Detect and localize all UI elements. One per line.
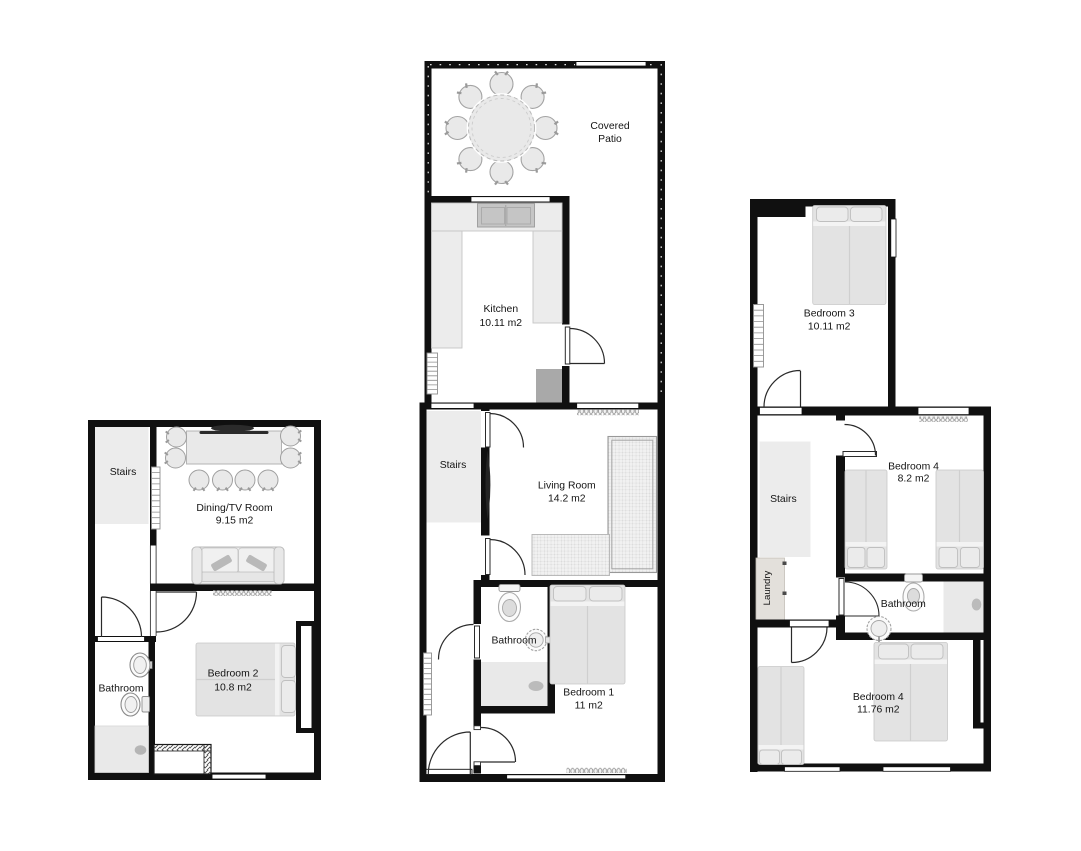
svg-text:Covered: Covered <box>590 121 629 132</box>
svg-text:Bedroom 3: Bedroom 3 <box>804 308 855 319</box>
svg-text:Bathroom: Bathroom <box>881 599 926 610</box>
svg-text:Patio: Patio <box>598 134 622 145</box>
svg-text:10.8 m2: 10.8 m2 <box>214 682 252 693</box>
svg-text:Stairs: Stairs <box>770 494 797 505</box>
svg-text:9.15 m2: 9.15 m2 <box>216 515 254 526</box>
svg-text:Laundry: Laundry <box>762 570 773 605</box>
svg-text:11 m2: 11 m2 <box>575 700 603 711</box>
svg-text:Bedroom 1: Bedroom 1 <box>563 687 614 698</box>
svg-text:Kitchen: Kitchen <box>483 304 518 315</box>
svg-text:10.11 m2: 10.11 m2 <box>480 318 523 329</box>
svg-text:Stairs: Stairs <box>440 460 467 471</box>
svg-text:Stairs: Stairs <box>110 467 137 478</box>
svg-text:Bedroom 4: Bedroom 4 <box>853 692 904 703</box>
svg-text:Dining/TV Room: Dining/TV Room <box>196 503 272 514</box>
svg-text:Bedroom 4: Bedroom 4 <box>888 461 939 472</box>
svg-text:Bathroom: Bathroom <box>491 636 536 647</box>
svg-text:8.2 m2: 8.2 m2 <box>898 473 930 484</box>
svg-text:Living Room: Living Room <box>538 481 596 492</box>
svg-text:14.2 m2: 14.2 m2 <box>548 494 586 505</box>
svg-text:10.11 m2: 10.11 m2 <box>808 321 851 332</box>
svg-text:11.76 m2: 11.76 m2 <box>857 704 900 715</box>
svg-text:Bedroom 2: Bedroom 2 <box>208 668 259 679</box>
svg-text:Bathroom: Bathroom <box>98 683 143 694</box>
